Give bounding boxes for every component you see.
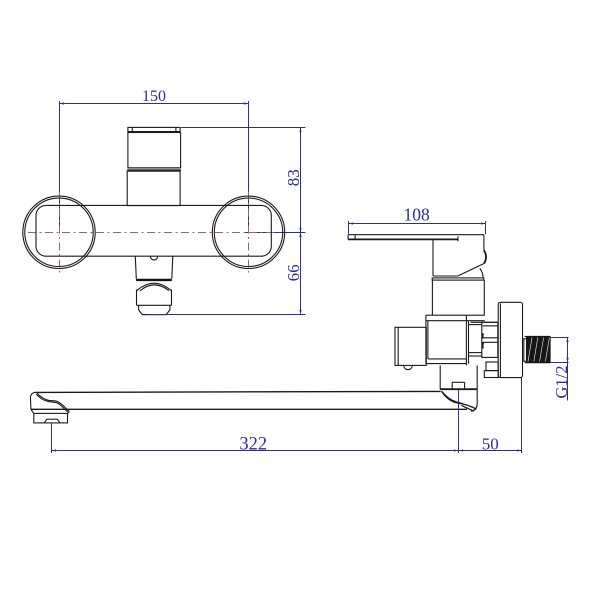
- svg-text:83: 83: [284, 169, 303, 186]
- svg-text:66: 66: [284, 264, 303, 281]
- svg-text:G1/2: G1/2: [552, 366, 571, 399]
- svg-text:322: 322: [239, 435, 267, 455]
- svg-text:108: 108: [403, 204, 430, 224]
- svg-text:50: 50: [482, 434, 499, 453]
- svg-text:150: 150: [142, 88, 166, 105]
